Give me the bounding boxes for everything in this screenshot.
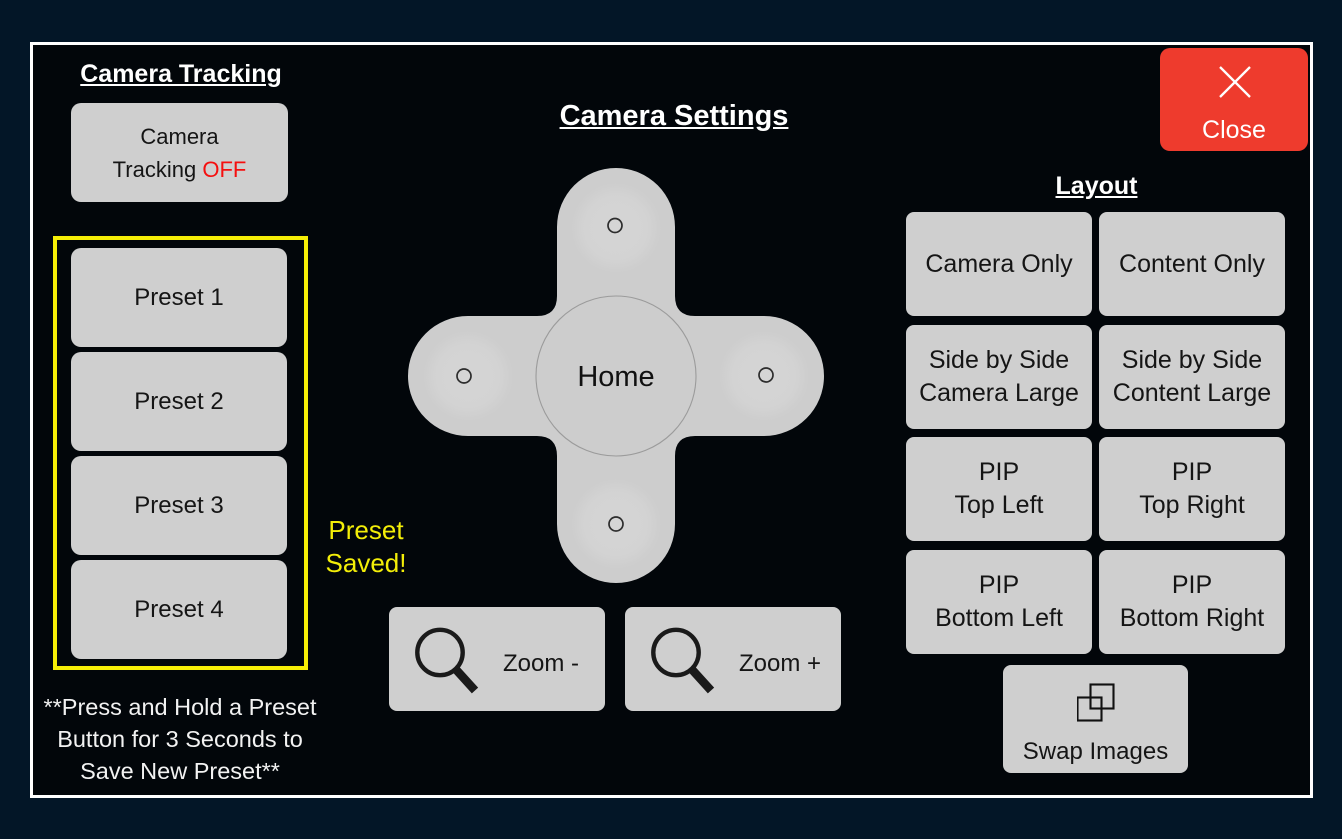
- svg-text:Home: Home: [577, 361, 654, 393]
- svg-text:Zoom +: Zoom +: [739, 650, 821, 677]
- svg-text:Zoom -: Zoom -: [503, 650, 579, 677]
